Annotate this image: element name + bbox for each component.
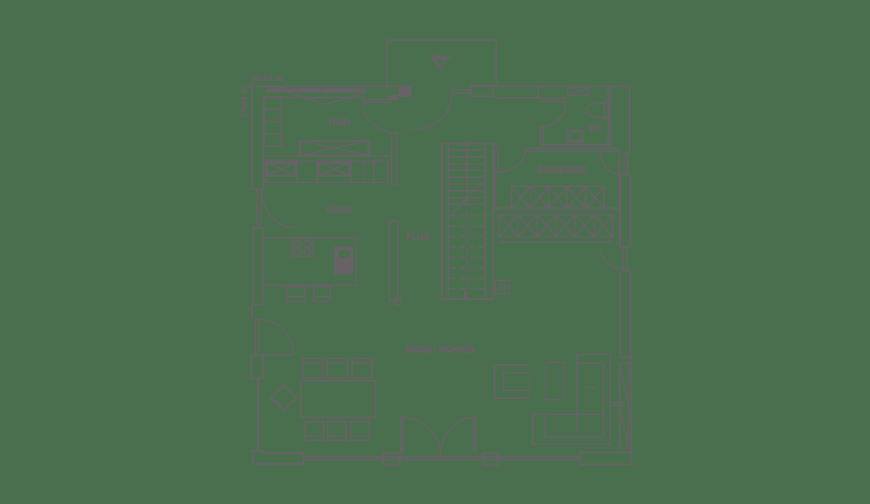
svg-text:HWR: HWR	[329, 118, 351, 129]
svg-text:10,24 m: 10,24 m	[252, 73, 283, 83]
svg-text:KÜCHE: KÜCHE	[326, 205, 354, 216]
svg-text:10,24 m: 10,24 m	[238, 86, 248, 117]
svg-text:GARDEROBE: GARDEROBE	[537, 165, 588, 176]
svg-text:ESSEN / WOHNEN: ESSEN / WOHNEN	[406, 345, 476, 356]
svg-text:FLUR: FLUR	[407, 232, 431, 242]
svg-text:WC: WC	[589, 123, 604, 134]
